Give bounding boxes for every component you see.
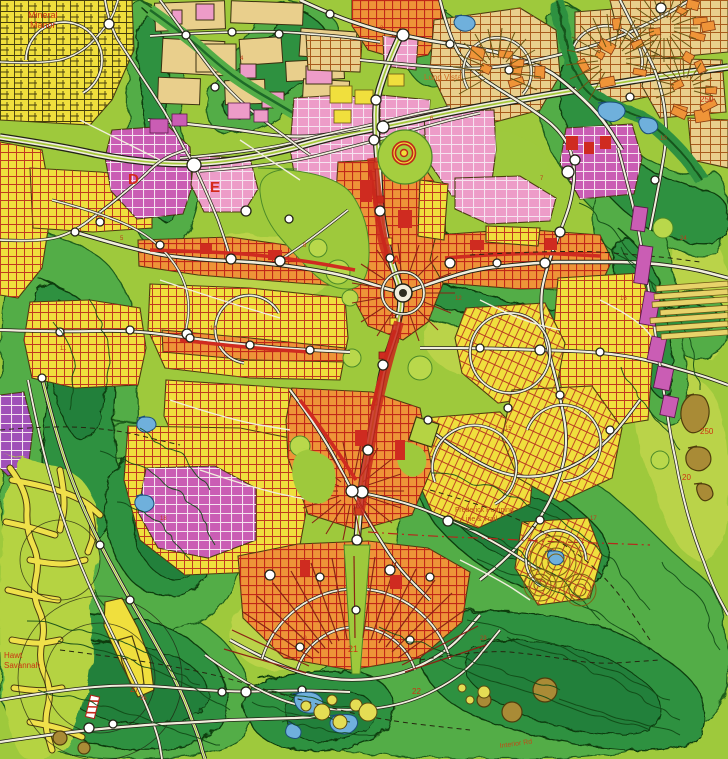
svg-text:Hawt: Hawt: [4, 651, 23, 660]
svg-text:23: 23: [480, 636, 487, 642]
svg-text:20: 20: [682, 473, 691, 482]
svg-text:19: 19: [300, 636, 307, 642]
svg-text:D: D: [128, 171, 139, 188]
svg-text:Long Vista: Long Vista: [424, 73, 462, 82]
svg-text:Manor: Manor: [30, 20, 56, 30]
svg-text:Savannah: Savannah: [4, 661, 40, 670]
svg-text:A: A: [392, 253, 401, 267]
svg-text:26: 26: [140, 696, 147, 702]
svg-text:11: 11: [60, 346, 67, 352]
svg-text:22: 22: [412, 687, 421, 696]
svg-text:Mineral: Mineral: [28, 10, 58, 20]
svg-text:18: 18: [160, 516, 167, 522]
svg-text:10: 10: [660, 136, 667, 142]
svg-text:16: 16: [620, 296, 627, 302]
svg-text:24: 24: [680, 236, 687, 242]
svg-text:250: 250: [700, 95, 714, 104]
svg-text:Frederick Pumping: Frederick Pumping: [455, 507, 514, 514]
svg-text:14: 14: [210, 326, 217, 332]
svg-text:21: 21: [348, 644, 358, 654]
svg-text:250: 250: [700, 427, 714, 436]
svg-text:12: 12: [455, 296, 462, 302]
svg-text:15: 15: [505, 426, 512, 432]
svg-text:17: 17: [590, 516, 597, 522]
svg-text:Line & Trail: Line & Trail: [462, 516, 497, 523]
svg-text:E: E: [210, 179, 220, 196]
